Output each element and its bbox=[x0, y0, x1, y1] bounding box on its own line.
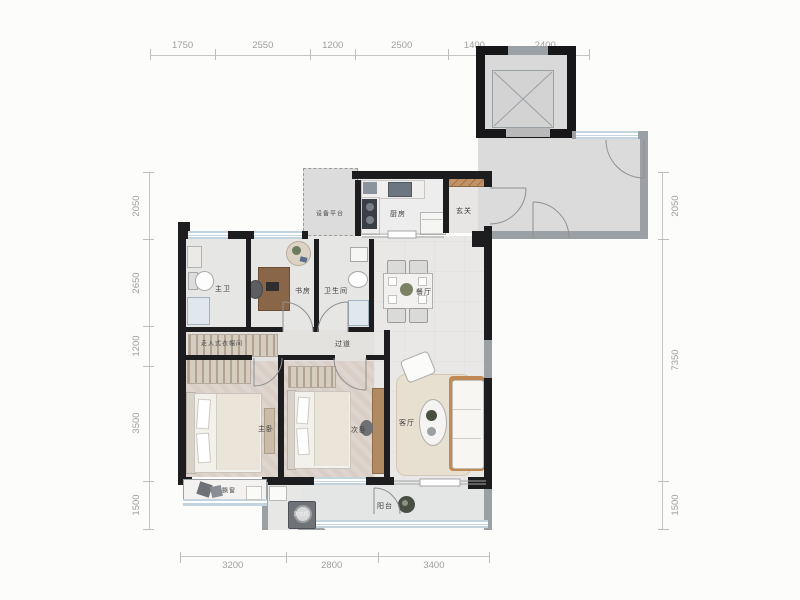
room-label-study: 书房 bbox=[295, 286, 311, 296]
room-label-bathroom: 卫生间 bbox=[324, 286, 348, 296]
room-label-master-bedroom: 主卧 bbox=[258, 424, 274, 434]
room-label-foyer: 玄关 bbox=[456, 206, 472, 216]
room-label-balcony: 阳台 bbox=[377, 501, 393, 511]
room-label-dining: 餐厅 bbox=[416, 287, 432, 297]
room-label-closet: 走入式衣帽间 bbox=[201, 339, 243, 348]
room-label-second-bedroom: 次卧 bbox=[351, 425, 367, 435]
room-label-bay-window: 飘窗 bbox=[222, 486, 236, 495]
room-label-washer: 洗衣机 bbox=[293, 511, 308, 518]
room-label-living: 客厅 bbox=[399, 418, 415, 428]
room-label-master-bath: 主卫 bbox=[215, 284, 231, 294]
room-label-hallway: 过道 bbox=[335, 339, 351, 349]
doors-and-symbols-overlay bbox=[0, 0, 800, 600]
room-label-equipment-platform: 设备平台 bbox=[316, 209, 344, 218]
floor-plan-canvas: 1750 2550 1200 2500 1400 2400 2050 2650 … bbox=[0, 0, 800, 600]
room-label-kitchen: 厨房 bbox=[390, 209, 406, 219]
